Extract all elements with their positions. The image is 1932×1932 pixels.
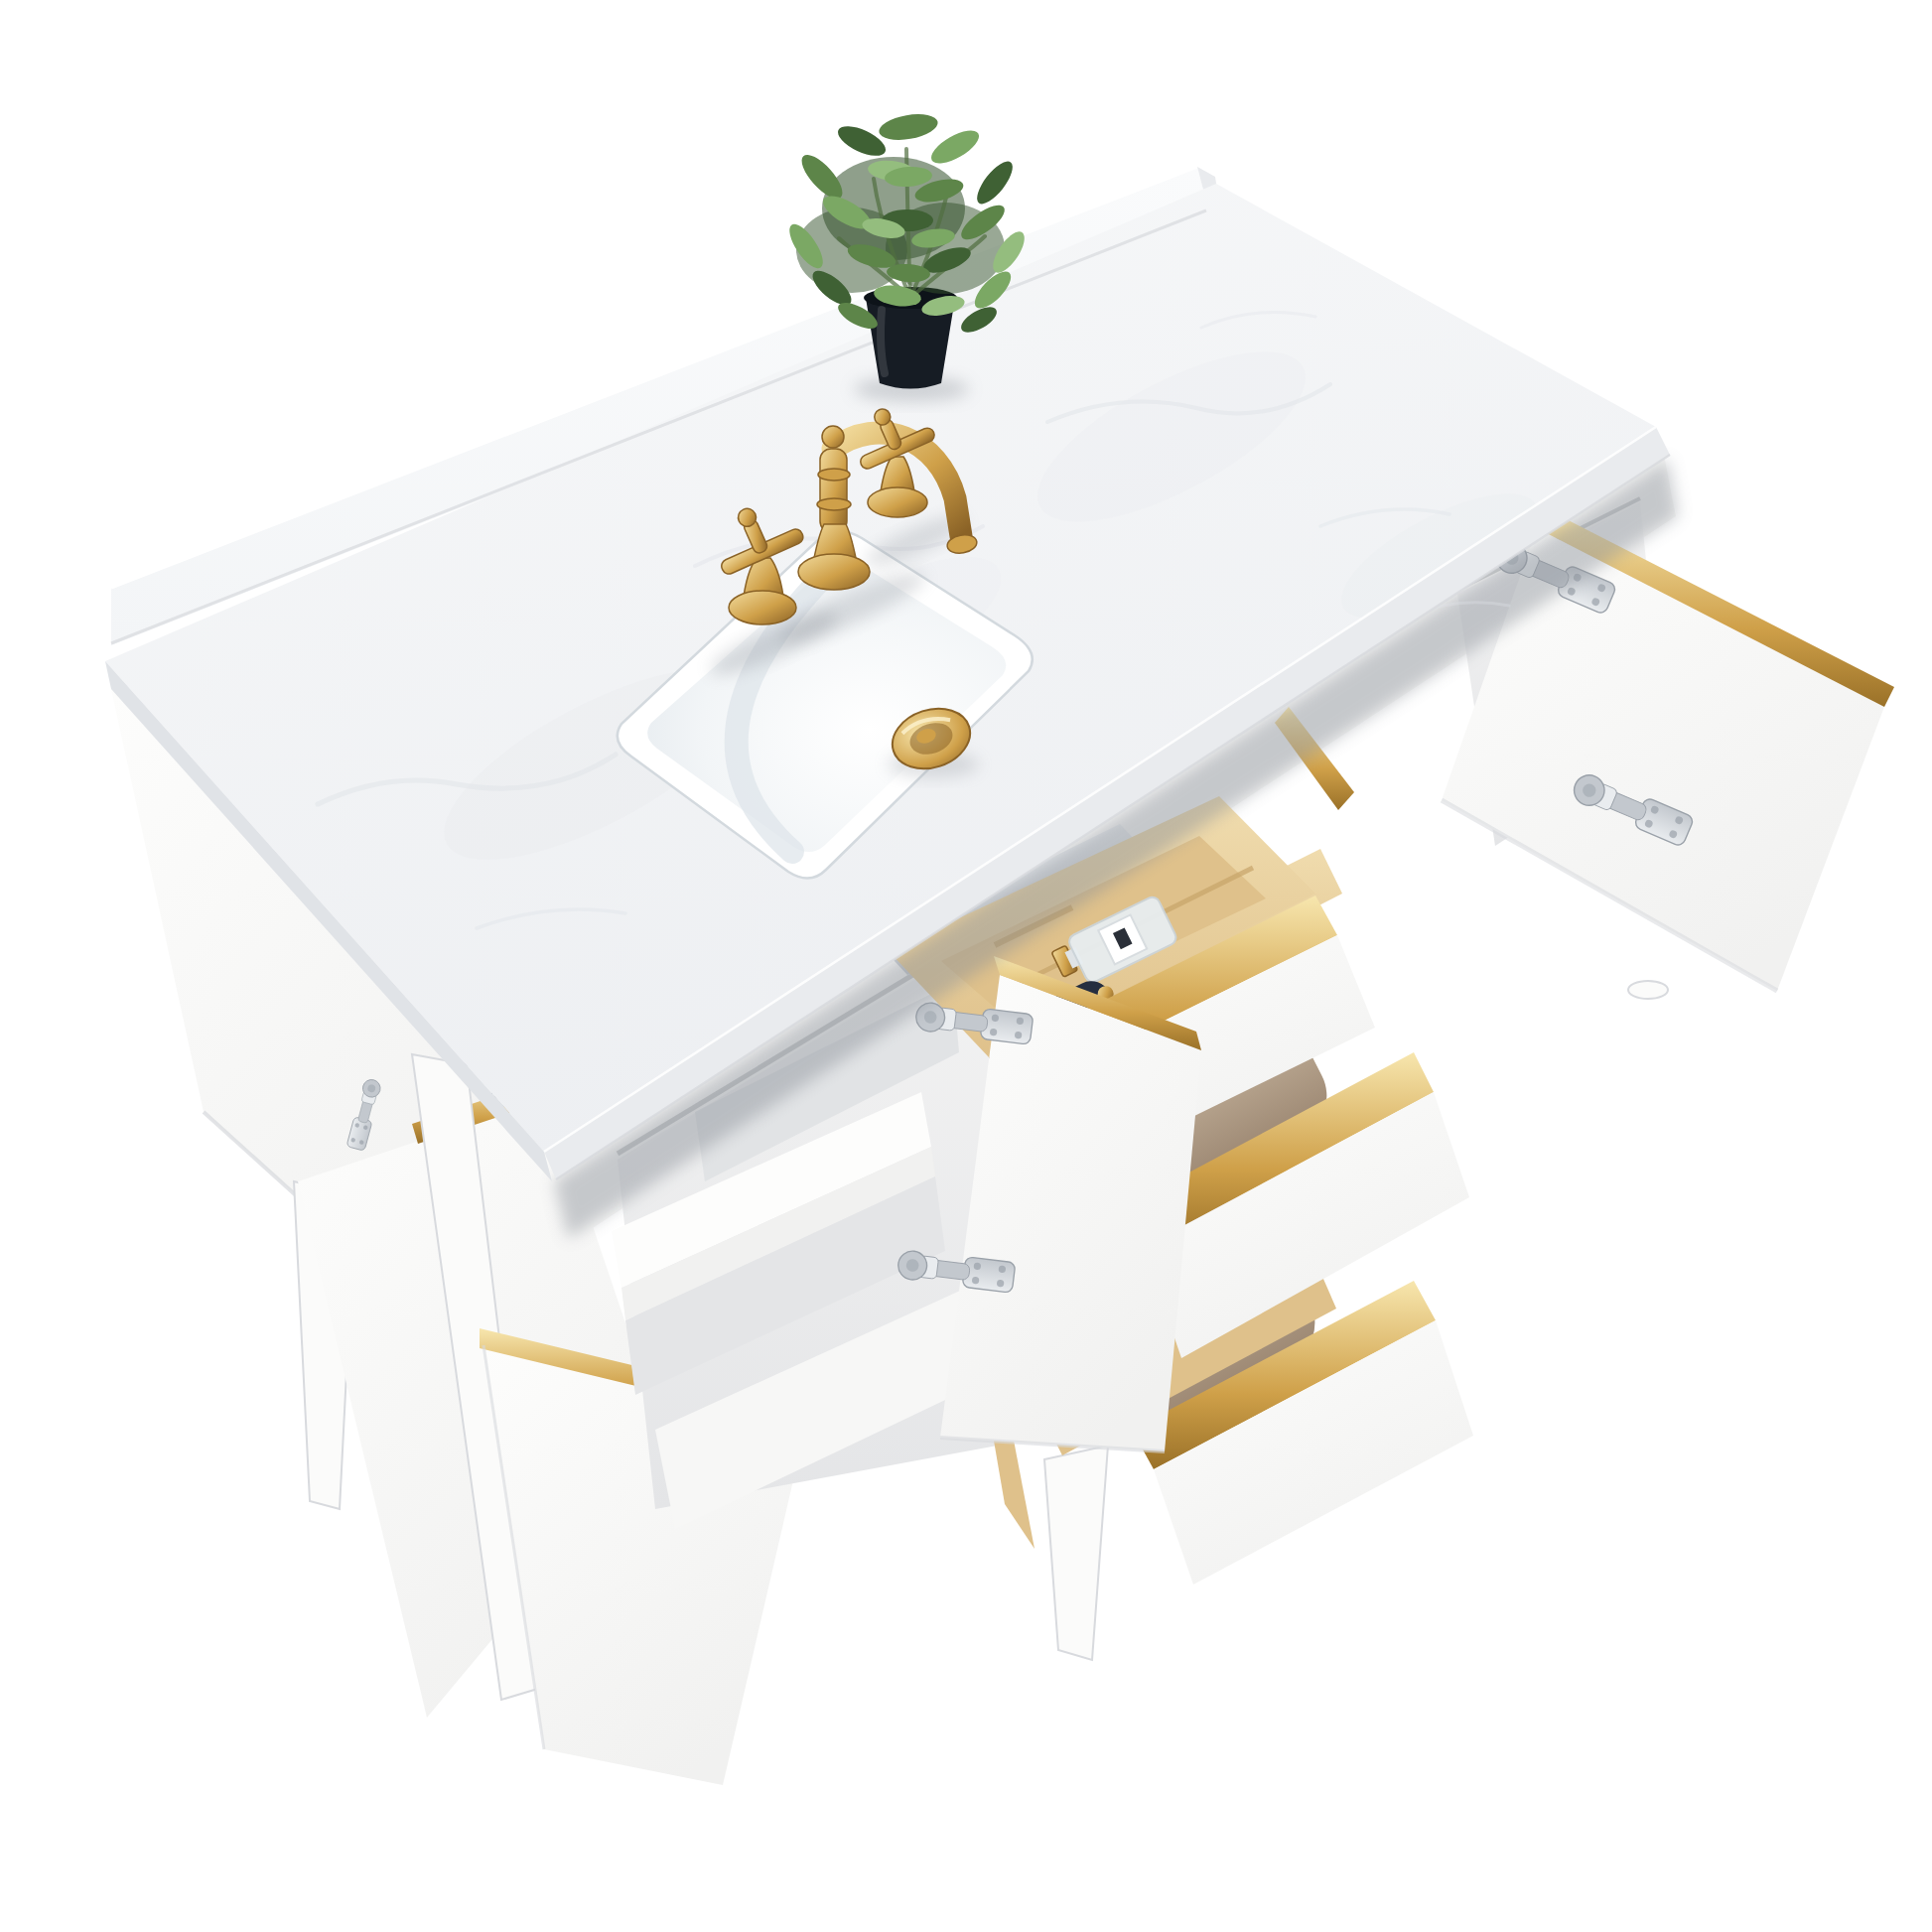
spout-column [820,449,847,532]
handle-base [868,487,927,517]
spout-finial [822,426,844,448]
vanity-product-photo [0,0,1932,1932]
leaf [877,110,939,144]
plant-pot-highlight [881,310,885,373]
right-door-foot [1628,981,1668,999]
leaf [971,156,1019,208]
spout-ring [817,498,851,510]
leaf [926,124,984,170]
handle-base [729,591,796,624]
cabinet-leg-center [1044,1446,1108,1660]
spout-base [798,554,870,590]
spout-ring [818,469,850,481]
product-photo-canvas: Studio product photo of a white bathroom… [0,0,1932,1932]
